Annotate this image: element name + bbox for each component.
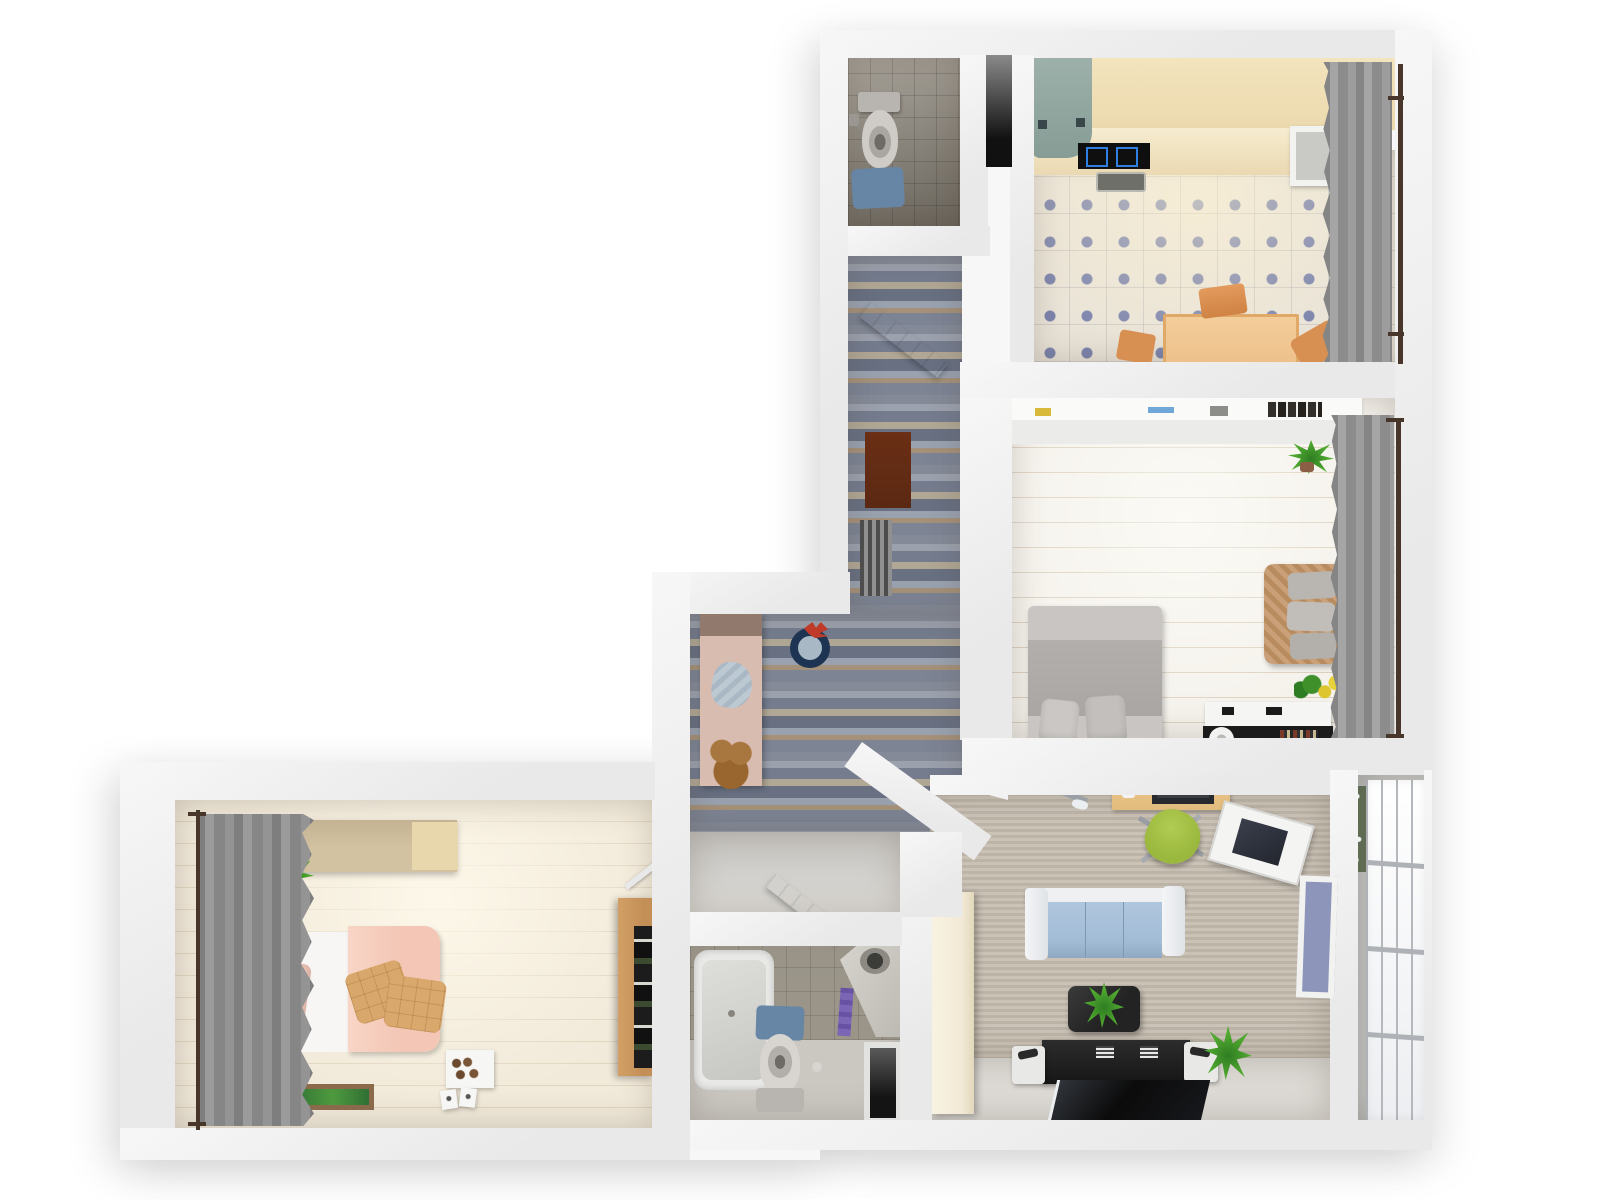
wall-outer-top	[820, 30, 1432, 58]
living-room-window	[1296, 875, 1338, 998]
bathroom-soap	[812, 1062, 822, 1072]
duct-shaft-dark	[986, 55, 1012, 167]
tv-panel	[1047, 1080, 1210, 1125]
wall-corridor-right	[960, 398, 1012, 740]
tv-bench-mark-2	[1140, 1046, 1158, 1058]
shelf-books-dark	[1268, 402, 1322, 417]
kids-curtain-rod	[196, 810, 200, 1130]
kitchen-rod-bracket-bottom	[1388, 332, 1404, 336]
toilet-tank	[858, 92, 900, 112]
bathtub-drain	[728, 1010, 735, 1017]
kids-cushion-2	[383, 974, 448, 1034]
bedroom-curtain	[1330, 415, 1394, 740]
kids-rod-bracket-bottom	[188, 1122, 206, 1126]
loveseat-cushion-3	[1290, 632, 1337, 660]
sofa-cushion-1	[1048, 902, 1086, 958]
wall-living-room-top	[930, 775, 1330, 795]
wall-bathroom-top	[690, 912, 902, 946]
wall-kids-bottom	[120, 1128, 690, 1160]
wc-bath-mat	[851, 167, 905, 210]
kids-curtain	[196, 814, 314, 1126]
wall-outer-left-upper	[820, 30, 848, 575]
cooktop-burner-right	[1116, 147, 1138, 167]
floorplan-canvas	[0, 0, 1600, 1200]
tv-bench	[1042, 1040, 1190, 1084]
wall-balcony-outer-right	[1424, 770, 1432, 1150]
wall-wc-right	[960, 55, 988, 230]
kitchen-curtain-rod	[1398, 64, 1403, 364]
bathroom-toilet-base	[756, 1088, 804, 1112]
tv-bench-mark-1	[1096, 1046, 1114, 1058]
media-console-top	[1205, 702, 1331, 728]
wall-kitchen-bottom	[960, 362, 1395, 398]
bedroom-plant-pot	[1300, 462, 1314, 472]
greeting-card-1	[440, 1089, 458, 1110]
sofa-cushion-3	[1124, 902, 1162, 958]
vanity-sink	[860, 948, 890, 974]
refrigerator-handle-right	[1076, 118, 1085, 127]
wall-outer-bottom-right	[655, 1120, 1432, 1150]
hallway-radiator	[860, 520, 892, 596]
entry-console-shelf-shadow	[700, 614, 762, 636]
media-console-knob-1	[1222, 707, 1234, 715]
wall-kids-right	[652, 572, 690, 1128]
cooktop-burner-left	[1086, 147, 1108, 167]
refrigerator-handle-left	[1038, 120, 1047, 129]
shelf-item-gray-box	[1210, 406, 1228, 416]
loveseat-cushion-2	[1287, 601, 1336, 632]
chocolate-box	[446, 1050, 494, 1088]
kids-wardrobe-right-section	[412, 822, 458, 870]
dining-table	[1163, 314, 1299, 368]
wall-kids-top	[120, 762, 655, 800]
bedroom-rod-bracket-bottom	[1386, 734, 1404, 738]
oak-wardrobe-clothes	[634, 926, 652, 1068]
kitchen-sink	[1096, 172, 1146, 192]
kitchen-curtain	[1322, 62, 1392, 366]
sofa-arm-right	[1162, 886, 1185, 956]
sofa-cushion-2	[1086, 902, 1124, 958]
teddy-bear	[708, 736, 754, 790]
media-console-knob-2	[1266, 707, 1282, 715]
wall-kitchen-left	[1010, 55, 1034, 365]
toilet-seat-ring	[869, 126, 891, 158]
cream-wardrobe	[932, 892, 974, 1114]
hallway-doormat	[865, 432, 911, 508]
kitchen-rod-bracket-top	[1388, 96, 1404, 100]
wall-kids-left	[120, 762, 175, 1160]
sofa-arm-left	[1025, 888, 1048, 960]
loveseat-cushion-1	[1287, 571, 1336, 600]
bedroom-wall-shelf-front	[1012, 420, 1362, 444]
dining-chair-left	[1116, 329, 1157, 365]
kids-rod-bracket-top	[188, 812, 206, 816]
utility-shaft	[864, 1042, 902, 1124]
dining-chair-top	[1198, 283, 1248, 319]
wall-vestibule-right	[900, 832, 962, 917]
wall-wc-bottom	[848, 226, 990, 256]
bathroom-toilet-ring	[768, 1046, 792, 1078]
greeting-card-2	[459, 1087, 477, 1108]
bedroom-curtain-rod	[1396, 420, 1401, 738]
toilet-paper-holder	[849, 114, 859, 126]
bedroom-rod-bracket-top	[1386, 418, 1404, 422]
shelf-item-yellow	[1035, 408, 1051, 416]
shelf-item-blue	[1148, 407, 1174, 413]
